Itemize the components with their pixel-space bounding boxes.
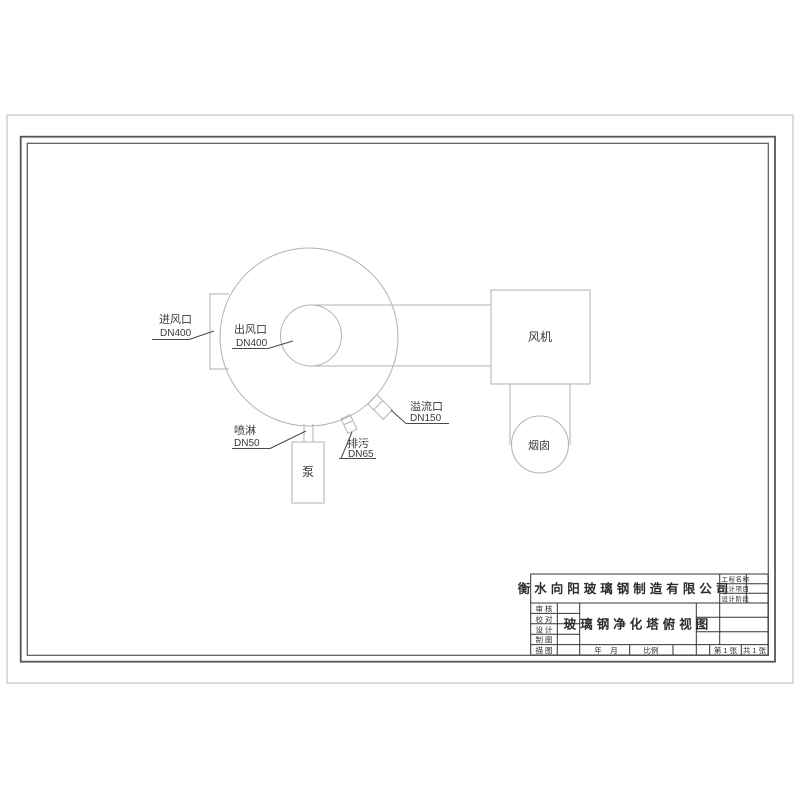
scale-label: 比例	[644, 645, 659, 655]
month-label: 月	[610, 646, 618, 655]
sheet-total-label: 共 1 张	[743, 646, 767, 655]
pump-label: 泵	[302, 465, 314, 479]
chimney-label: 烟囱	[528, 438, 550, 452]
inlet-label: 进风口	[159, 313, 192, 326]
inlet-dn-label: DN400	[160, 328, 192, 339]
outlet-dn-label: DN400	[236, 338, 268, 349]
engineering-drawing-page: 进风口 DN400 出风口 DN400 喷淋 DN50 排污 DN65 溢流口 …	[0, 0, 800, 800]
drawing-title: 玻璃钢净化塔俯视图	[564, 617, 713, 632]
paper-sheet	[7, 115, 793, 683]
spray-label: 喷淋	[234, 424, 256, 437]
proofreader-field-label: 校对	[536, 614, 555, 624]
drawing-canvas: 进风口 DN400 出风口 DN400 喷淋 DN50 排污 DN65 溢流口 …	[0, 0, 800, 800]
design-project-field-label: 设计项目	[722, 584, 750, 593]
reviewer-field-label: 审核	[536, 604, 555, 614]
overflow-label: 溢流口	[410, 399, 443, 413]
design-phase-field-label: 设计阶段	[722, 594, 750, 603]
sheet-number-label: 第 1 张	[714, 645, 738, 655]
tracer-field-label: 描图	[536, 645, 555, 655]
designer-field-label: 设计	[536, 624, 555, 634]
project-name-field-label: 工程名称	[722, 575, 750, 584]
outlet-label: 出风口	[234, 322, 267, 336]
overflow-dn-label: DN150	[410, 413, 442, 424]
company-name: 衡水向阳玻璃钢制造有限公司	[518, 581, 733, 596]
drafter-field-label: 制图	[536, 635, 555, 645]
year-label: 年	[594, 645, 602, 655]
fan-label: 风机	[528, 330, 552, 344]
drain-label: 排污	[347, 436, 369, 450]
spray-dn-label: DN50	[234, 438, 260, 449]
